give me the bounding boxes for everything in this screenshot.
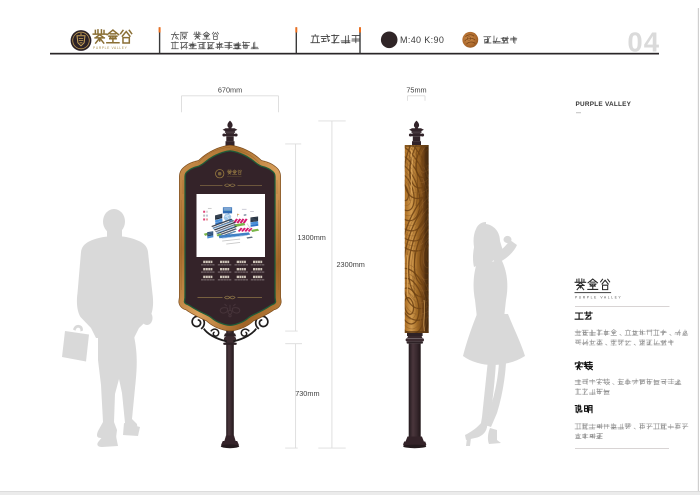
svg-text:04: 04 — [627, 27, 660, 58]
svg-text:M:40 K:90: M:40 K:90 — [400, 35, 444, 45]
svg-text:730mm: 730mm — [295, 389, 319, 398]
svg-text:PURPLE VALLEY: PURPLE VALLEY — [576, 101, 632, 108]
svg-text:PURPLE VALLEY: PURPLE VALLEY — [575, 295, 622, 299]
svg-text:PURPLE VALLEY: PURPLE VALLEY — [93, 46, 128, 50]
svg-text:2300mm: 2300mm — [337, 260, 365, 269]
svg-text:1300mm: 1300mm — [298, 233, 326, 242]
svg-text:75mm: 75mm — [406, 86, 426, 95]
svg-text:670mm: 670mm — [218, 86, 242, 95]
